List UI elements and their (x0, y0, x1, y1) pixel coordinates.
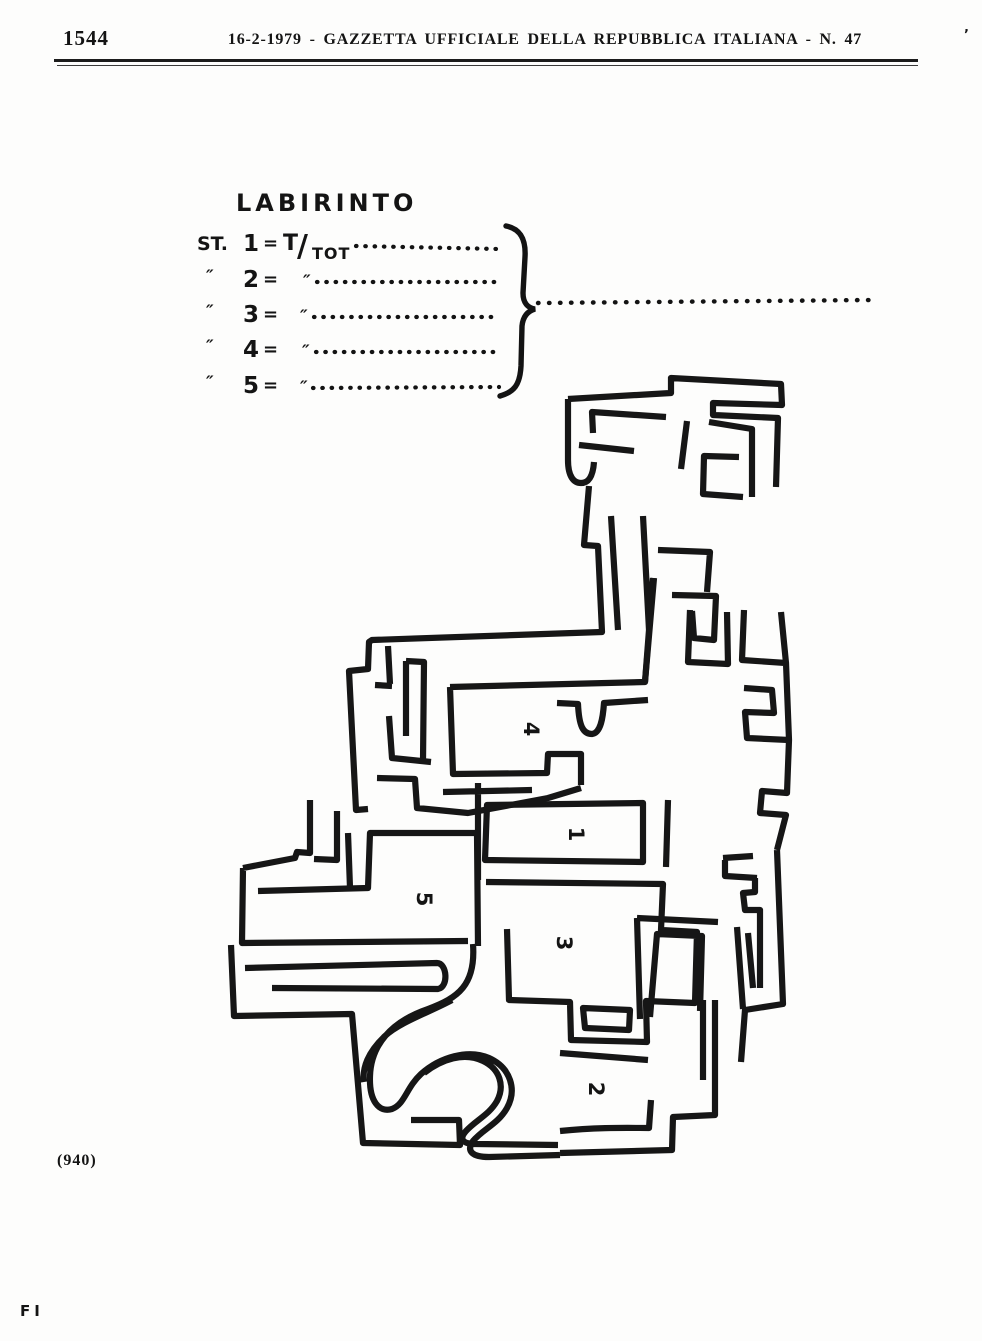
figure-title: LABIRINTO (236, 189, 417, 217)
row2-ditto: ″ (303, 272, 311, 292)
maze-label-region-1: 1 (564, 827, 588, 842)
labirinto-legend: LABIRINTO ST. 1 = T / TOT ″ 2 = ″ ″ 3 = … (197, 189, 871, 399)
maze-label-region-4: 4 (519, 722, 543, 737)
row4-ditto: ″ (302, 342, 310, 362)
legend-long-dotted-line (538, 300, 871, 303)
labyrinth-maze: 1 2 3 4 5 (231, 378, 789, 1157)
row1-num: 1 (243, 231, 259, 257)
row1-eq: = (263, 233, 278, 254)
row4-num: 4 (243, 337, 259, 363)
legend-brace (500, 226, 535, 396)
row2-eq: = (263, 269, 278, 290)
row1-value-tot: TOT (312, 244, 350, 263)
row1-dotted-leader (356, 246, 499, 249)
row3-prefix: ″ (206, 302, 214, 322)
gazette-scan-page: 1544 16-2-1979 - GAZZETTA UFFICIALE DELL… (0, 0, 982, 1341)
maze-label-region-5: 5 (412, 892, 436, 907)
row1-value-slash: / (297, 229, 308, 264)
row5-dotted-leader (313, 387, 499, 388)
figure-canvas: LABIRINTO ST. 1 = T / TOT ″ 2 = ″ ″ 3 = … (0, 0, 982, 1341)
row5-ditto: ″ (300, 378, 308, 398)
row2-prefix: ″ (206, 267, 214, 287)
row2-num: 2 (243, 267, 259, 293)
row3-ditto: ″ (300, 307, 308, 327)
footer-mark: FI (20, 1302, 44, 1320)
maze-walls-right (450, 578, 789, 1062)
row5-eq: = (263, 375, 278, 396)
maze-label-region-3: 3 (552, 936, 576, 951)
row4-eq: = (263, 339, 278, 360)
row1-value-t: T (283, 231, 298, 256)
figure-caption-number: (940) (57, 1152, 97, 1169)
row1-prefix: ST. (197, 233, 228, 255)
row3-num: 3 (243, 302, 259, 328)
maze-walls-center (443, 783, 718, 1042)
row5-prefix: ″ (206, 373, 214, 393)
row4-prefix: ″ (206, 337, 214, 357)
maze-label-region-2: 2 (584, 1082, 608, 1097)
row3-eq: = (263, 304, 278, 325)
row5-num: 5 (243, 373, 259, 399)
